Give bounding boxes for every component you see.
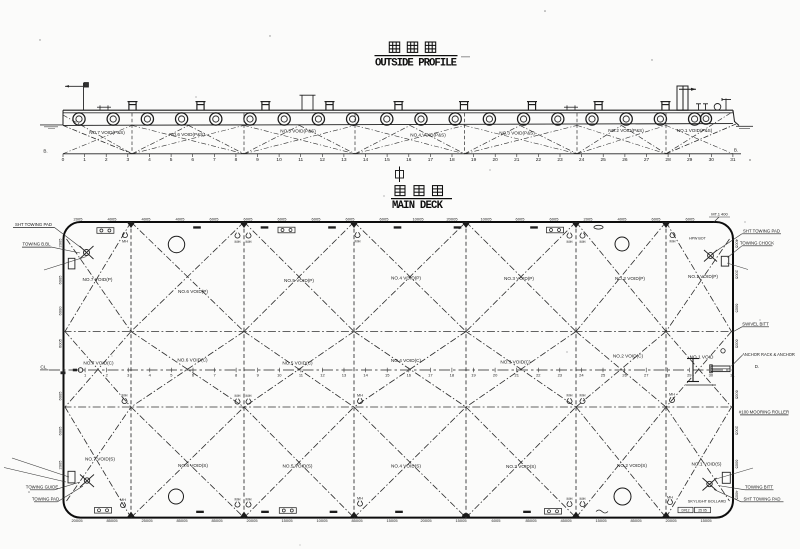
svg-text:MH: MH xyxy=(355,240,361,244)
svg-text:6005: 6005 xyxy=(278,216,288,221)
svg-text:6005: 6005 xyxy=(57,391,62,401)
svg-text:MH: MH xyxy=(567,240,573,244)
svg-text:85005: 85005 xyxy=(351,518,363,523)
svg-text:6005: 6005 xyxy=(312,216,322,221)
svg-text:31: 31 xyxy=(730,372,735,377)
svg-text:19: 19 xyxy=(471,157,477,163)
svg-text:2005: 2005 xyxy=(584,216,594,221)
svg-text:6005: 6005 xyxy=(735,339,740,349)
svg-text:MH: MH xyxy=(235,498,241,502)
svg-text:D.: D. xyxy=(755,364,759,369)
svg-text:9: 9 xyxy=(256,157,259,163)
svg-text:0: 0 xyxy=(62,157,65,163)
svg-text:NO.5 VOID(P&S): NO.5 VOID(P&S) xyxy=(280,129,316,134)
svg-text:MH: MH xyxy=(246,240,252,244)
svg-text:18: 18 xyxy=(449,157,455,163)
svg-text:11: 11 xyxy=(298,157,303,163)
svg-text:5: 5 xyxy=(170,157,173,163)
svg-text:15005: 15005 xyxy=(700,518,712,523)
svg-text:TOWING B.BL: TOWING B.BL xyxy=(22,242,51,247)
svg-text:NO.4 VOID(P&S): NO.4 VOID(P&S) xyxy=(410,133,446,138)
svg-text:26: 26 xyxy=(622,157,628,163)
svg-text:MH: MH xyxy=(122,240,128,244)
svg-text:MH: MH xyxy=(122,394,128,398)
svg-text:18: 18 xyxy=(450,372,455,377)
svg-text:15005: 15005 xyxy=(386,518,398,523)
svg-text:2005: 2005 xyxy=(57,460,62,470)
svg-text:3: 3 xyxy=(126,157,129,163)
svg-text:13: 13 xyxy=(341,157,347,163)
svg-text:NO.4 VOID(S): NO.4 VOID(S) xyxy=(391,464,421,469)
svg-text:85005: 85005 xyxy=(630,518,642,523)
svg-text:27: 27 xyxy=(644,157,650,163)
svg-text:15: 15 xyxy=(385,372,390,377)
svg-text:MH: MH xyxy=(246,498,252,502)
svg-text:22: 22 xyxy=(536,372,541,377)
svg-text:4005: 4005 xyxy=(735,491,740,501)
svg-text:6005: 6005 xyxy=(210,216,220,221)
svg-text:15: 15 xyxy=(384,157,390,163)
svg-text:MH: MH xyxy=(567,497,573,501)
svg-text:6005: 6005 xyxy=(57,275,62,285)
svg-text:6005: 6005 xyxy=(244,216,254,221)
svg-text:SHT TOWING PAD: SHT TOWING PAD xyxy=(744,496,781,501)
svg-text:4005: 4005 xyxy=(618,216,628,221)
svg-text:SHT TOWING PAD: SHT TOWING PAD xyxy=(15,222,52,227)
svg-text:NO.6 VOID(P&S): NO.6 VOID(P&S) xyxy=(169,132,205,137)
svg-text:2005: 2005 xyxy=(735,270,740,280)
svg-text:20005: 20005 xyxy=(446,216,458,221)
svg-text:6005: 6005 xyxy=(550,216,560,221)
svg-text:6005: 6005 xyxy=(652,216,662,221)
svg-text:15005: 15005 xyxy=(455,518,467,523)
svg-text:10: 10 xyxy=(276,157,282,163)
svg-text:6005: 6005 xyxy=(516,216,526,221)
svg-text:12: 12 xyxy=(320,157,326,163)
svg-text:MH: MH xyxy=(246,394,252,398)
svg-text:MH: MH xyxy=(580,394,586,398)
svg-text:22: 22 xyxy=(536,157,542,163)
svg-text:TOWING BITT: TOWING BITT xyxy=(745,484,773,489)
svg-text:20005: 20005 xyxy=(71,518,83,523)
svg-text:NO.1 VOID(P): NO.1 VOID(P) xyxy=(688,274,718,279)
svg-text:26: 26 xyxy=(622,372,627,377)
svg-text:16: 16 xyxy=(406,157,412,163)
svg-text:29: 29 xyxy=(687,372,692,377)
svg-text:14: 14 xyxy=(363,372,368,377)
svg-text:MH: MH xyxy=(120,498,126,502)
svg-text:NO.7 VOID(C): NO.7 VOID(C) xyxy=(83,361,114,366)
svg-text:19: 19 xyxy=(471,372,476,377)
svg-text:2005: 2005 xyxy=(735,426,740,436)
svg-text:SWIVEL BITT: SWIVEL BITT xyxy=(742,321,769,326)
svg-text:20: 20 xyxy=(493,157,499,163)
svg-text:15005: 15005 xyxy=(595,518,607,523)
svg-text:29: 29 xyxy=(687,157,693,163)
svg-text:B.: B. xyxy=(734,147,738,152)
svg-text:NO.6 VOID(P): NO.6 VOID(P) xyxy=(178,289,208,294)
svg-text:ANCHOR RACK & ANCHOR: ANCHOR RACK & ANCHOR xyxy=(742,352,795,357)
svg-text:MAIN DECK: MAIN DECK xyxy=(392,200,444,212)
svg-text:12: 12 xyxy=(320,372,325,377)
svg-text:10005: 10005 xyxy=(412,216,424,221)
svg-text:4: 4 xyxy=(148,157,151,163)
svg-text:21: 21 xyxy=(514,372,519,377)
svg-text:25: 25 xyxy=(601,372,606,377)
svg-text:6000: 6000 xyxy=(57,306,62,316)
svg-text:NO.5 VOID(S): NO.5 VOID(S) xyxy=(283,464,313,469)
svg-text:NO.2 VOID(P&S): NO.2 VOID(P&S) xyxy=(608,128,644,133)
svg-text:NO.7 VOID(S): NO.7 VOID(S) xyxy=(85,457,115,462)
svg-text:25 05: 25 05 xyxy=(698,509,707,513)
svg-text:MH: MH xyxy=(667,495,673,499)
svg-text:SHT TOWING PAD: SHT TOWING PAD xyxy=(743,228,780,233)
svg-text:31: 31 xyxy=(730,157,736,163)
svg-text:NO.2 VOID(C): NO.2 VOID(C) xyxy=(613,354,644,359)
svg-text:NO.3 VOID(C): NO.3 VOID(C) xyxy=(500,360,531,365)
svg-text:45005: 45005 xyxy=(560,518,572,523)
svg-text:23: 23 xyxy=(558,372,563,377)
svg-text:HPW BOT: HPW BOT xyxy=(689,236,707,240)
svg-text:25005: 25005 xyxy=(141,518,153,523)
svg-text:20005: 20005 xyxy=(665,518,677,523)
svg-text:MH: MH xyxy=(567,394,573,398)
svg-text:2: 2 xyxy=(105,157,108,163)
svg-text:20005: 20005 xyxy=(420,518,432,523)
svg-text:25: 25 xyxy=(601,157,607,163)
svg-text:10005: 10005 xyxy=(316,518,328,523)
svg-text:85005: 85005 xyxy=(211,518,223,523)
svg-text:6005: 6005 xyxy=(57,338,62,348)
svg-text:NO.5 VOID(C): NO.5 VOID(C) xyxy=(282,361,313,366)
svg-text:MH: MH xyxy=(357,394,363,398)
svg-text:MH: MH xyxy=(669,393,675,397)
svg-text:10: 10 xyxy=(277,372,282,377)
svg-text:NO.2 VOID(S): NO.2 VOID(S) xyxy=(617,463,647,468)
svg-text:28: 28 xyxy=(665,157,671,163)
svg-text:6: 6 xyxy=(191,157,194,163)
svg-text:85005: 85005 xyxy=(106,518,118,523)
svg-text:6005: 6005 xyxy=(686,216,696,221)
svg-text:4005: 4005 xyxy=(142,216,152,221)
svg-text:7: 7 xyxy=(213,157,216,163)
svg-text:2005: 2005 xyxy=(74,216,84,221)
svg-text:85005: 85005 xyxy=(176,518,188,523)
svg-text:NO.3 VOID(S): NO.3 VOID(S) xyxy=(506,464,536,469)
svg-text:MH: MH xyxy=(235,394,241,398)
svg-text:4005: 4005 xyxy=(108,216,118,221)
svg-text:NO.6 VOID(C): NO.6 VOID(C) xyxy=(177,358,208,363)
svg-text:MH: MH xyxy=(357,497,363,501)
svg-text:MH: MH xyxy=(580,497,586,501)
svg-text:24: 24 xyxy=(579,157,585,163)
svg-text:NO.5 VOID(P): NO.5 VOID(P) xyxy=(284,278,314,283)
svg-text:NO.7 VOID(P&S): NO.7 VOID(P&S) xyxy=(89,130,125,135)
svg-text:NO.1 VOID(P&S): NO.1 VOID(P&S) xyxy=(677,128,713,133)
svg-text:6005: 6005 xyxy=(735,390,740,400)
svg-text:MH: MH xyxy=(670,240,676,244)
svg-text:20: 20 xyxy=(493,372,498,377)
svg-text:D#12: D#12 xyxy=(681,509,689,513)
svg-text:NO.3 VOID(P): NO.3 VOID(P) xyxy=(504,276,534,281)
svg-text:NO.2 VOID(P): NO.2 VOID(P) xyxy=(615,276,645,281)
svg-text:8: 8 xyxy=(235,157,238,163)
svg-text:14: 14 xyxy=(363,157,369,163)
svg-text:TOWING CHOCK: TOWING CHOCK xyxy=(740,240,774,245)
svg-text:27: 27 xyxy=(644,372,649,377)
svg-text:OUTSIDE PROFILE: OUTSIDE PROFILE xyxy=(375,57,457,69)
svg-text:23: 23 xyxy=(557,157,563,163)
svg-text:NO.3 VOID(P&S): NO.3 VOID(P&S) xyxy=(499,131,535,136)
svg-text:10005: 10005 xyxy=(480,216,492,221)
svg-text:MH: MH xyxy=(580,240,586,244)
svg-text:30: 30 xyxy=(709,157,715,163)
svg-text:17: 17 xyxy=(428,157,434,163)
svg-text:B.: B. xyxy=(43,148,47,153)
svg-text:1: 1 xyxy=(83,157,86,163)
svg-text:6005: 6005 xyxy=(735,460,740,470)
svg-text:17: 17 xyxy=(428,372,433,377)
svg-text:#100 MOORING ROLLER: #100 MOORING ROLLER xyxy=(739,409,789,414)
svg-text:TOWING PAD: TOWING PAD xyxy=(32,496,59,501)
svg-text:NO.7 VOID(P): NO.7 VOID(P) xyxy=(83,277,113,282)
svg-text:21: 21 xyxy=(514,157,520,163)
svg-text:6005: 6005 xyxy=(735,304,740,314)
svg-text:28: 28 xyxy=(665,372,670,377)
svg-text:6005: 6005 xyxy=(57,426,62,436)
svg-text:6005: 6005 xyxy=(492,518,502,523)
svg-text:4005: 4005 xyxy=(176,216,186,221)
svg-text:NO.4 VOID(P): NO.4 VOID(P) xyxy=(391,276,421,281)
svg-text:TOWING GUIDE: TOWING GUIDE xyxy=(26,484,59,489)
svg-text:NO.1 VOID(S): NO.1 VOID(S) xyxy=(692,462,722,467)
svg-text:15005: 15005 xyxy=(281,518,293,523)
svg-text:13: 13 xyxy=(342,372,347,377)
svg-text:MT.1 400: MT.1 400 xyxy=(711,212,728,217)
svg-text:6005: 6005 xyxy=(346,216,356,221)
svg-text:16: 16 xyxy=(407,372,412,377)
svg-text:6005: 6005 xyxy=(380,216,390,221)
svg-text:20005: 20005 xyxy=(246,518,258,523)
svg-text:SKYLIGHT BOLLARD: SKYLIGHT BOLLARD xyxy=(688,499,727,504)
svg-text:24: 24 xyxy=(579,372,584,377)
svg-text:MH: MH xyxy=(235,240,241,244)
svg-text:2005: 2005 xyxy=(57,238,62,248)
svg-text:NO.6 VOID(S): NO.6 VOID(S) xyxy=(178,463,208,468)
svg-text:85005: 85005 xyxy=(525,518,537,523)
svg-text:NO.4 VOID(C): NO.4 VOID(C) xyxy=(391,358,422,363)
